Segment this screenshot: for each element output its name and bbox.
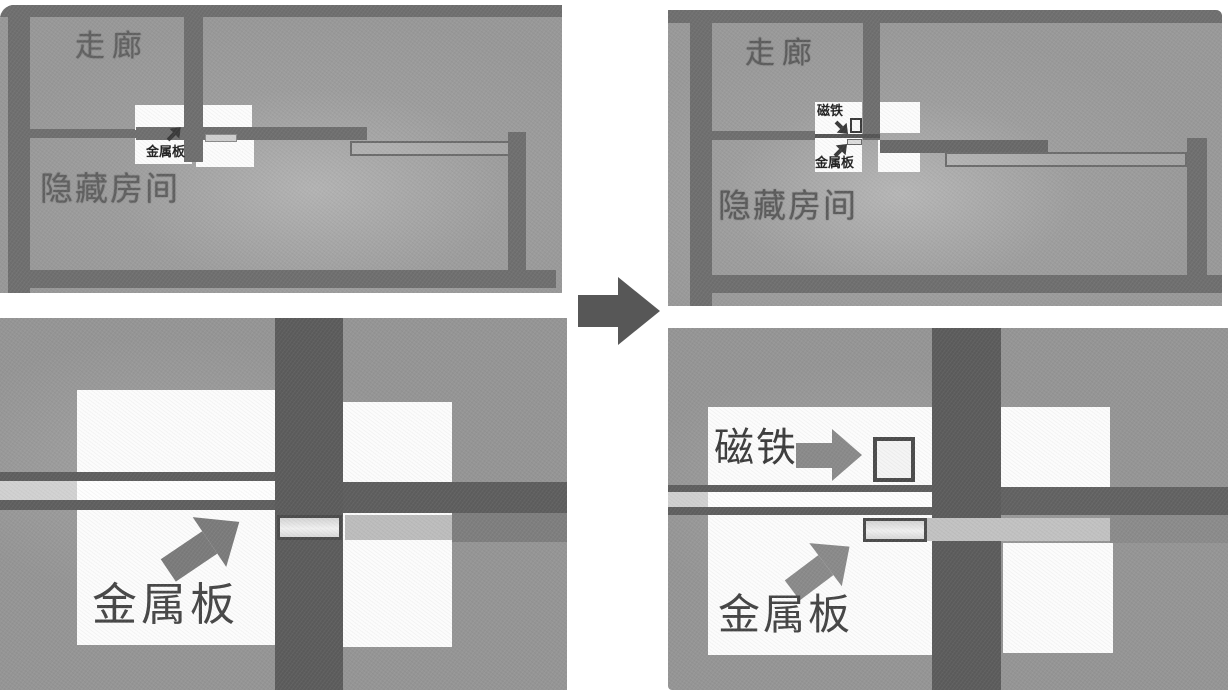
corridor-wall-left: [28, 129, 136, 138]
left-wall: [690, 10, 712, 306]
left-wall: [8, 5, 30, 293]
corridor-wall: [1001, 487, 1228, 515]
right-wall: [1187, 138, 1207, 293]
right-wall: [508, 132, 526, 284]
side-wall-band: [1110, 515, 1228, 543]
door-rail: [945, 152, 1187, 167]
side-wall-band: [452, 513, 567, 542]
corridor-strip: [0, 481, 275, 500]
panel-before-plan: 走廊 金属板 隐藏房间: [0, 5, 562, 293]
door-rail: [350, 141, 513, 156]
corridor-wall: [343, 482, 567, 513]
corridor-label: 走廊: [75, 32, 149, 62]
magnet-label: 磁铁: [817, 105, 843, 118]
metal-plate-label: 金属板: [718, 594, 853, 636]
metal-plate-label: 金属板: [146, 146, 185, 159]
metal-plate: [847, 139, 862, 145]
door-track-strip: [345, 515, 452, 540]
corridor-wall-line: [668, 485, 932, 492]
corridor-wall-left: [712, 131, 817, 140]
panel-before-zoom: 金属板: [0, 318, 567, 690]
corridor-wall-line: [815, 134, 880, 138]
metal-plate: [205, 134, 237, 142]
hidden-room-label: 隐藏房间: [718, 189, 858, 222]
transition-arrow-icon: [578, 277, 660, 345]
hidden-room-label: 隐藏房间: [40, 172, 180, 205]
corridor-wall-line: [668, 507, 932, 515]
corridor-label: 走廊: [745, 39, 819, 69]
metal-plate: [863, 518, 927, 542]
room-area: [1003, 543, 1113, 653]
partition-wall: [863, 10, 880, 140]
bottom-wall: [8, 270, 556, 288]
magnet: [873, 437, 915, 482]
bottom-wall: [690, 275, 1222, 293]
metal-plate: [277, 515, 342, 540]
magnet-label: 磁铁: [714, 428, 798, 468]
doorway-highlight: [878, 102, 920, 133]
partition-wall: [932, 328, 1001, 690]
arrow-right-icon: [796, 429, 862, 481]
metal-plate-label: 金属板: [815, 157, 854, 170]
panel-after-plan: 走廊 磁铁 金属板 隐藏房间: [668, 10, 1222, 306]
corridor-wall-line: [0, 472, 275, 481]
doorway-highlight: [196, 138, 254, 167]
metal-plate-label: 金属板: [92, 582, 239, 627]
door-track-strip: [927, 518, 1110, 541]
corridor-strip: [668, 492, 932, 507]
floorplan-figure: 走廊 金属板 隐藏房间 走廊 磁铁: [0, 0, 1228, 699]
magnet: [850, 118, 862, 133]
corridor-wall-line: [0, 500, 275, 510]
panel-after-zoom: 磁铁 金属板: [668, 328, 1228, 690]
top-wall: [0, 5, 562, 17]
room-area: [1000, 407, 1110, 487]
top-wall: [668, 10, 1222, 23]
partition-wall: [275, 318, 343, 690]
